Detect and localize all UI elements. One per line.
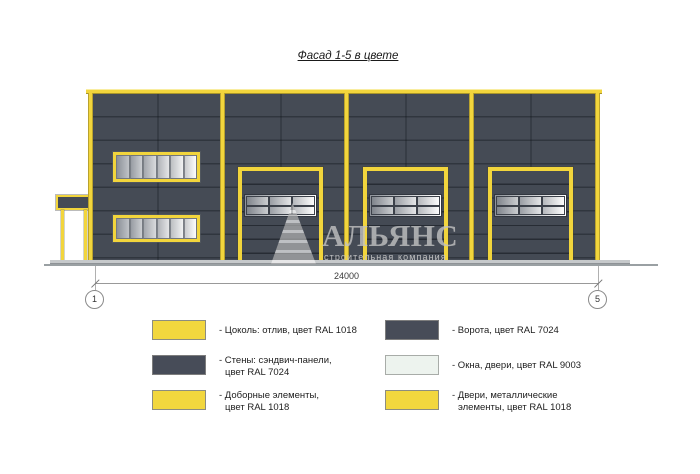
window-pane bbox=[184, 218, 198, 239]
legend-label-line: - Ворота, цвет RAL 7024 bbox=[452, 325, 559, 337]
bay-divider-trim bbox=[220, 93, 225, 264]
legend-label: - Стены: сэндвич-панели, цвет RAL 7024 bbox=[219, 355, 332, 378]
corner-trim-right bbox=[595, 93, 600, 264]
gate-window-pane bbox=[542, 196, 565, 206]
legend-item-gates: - Ворота, цвет RAL 7024 bbox=[385, 320, 559, 340]
gate-window-pane bbox=[269, 196, 292, 206]
gate-window-pane bbox=[417, 196, 440, 206]
legend-item-windows-doors: - Окна, двери, цвет RAL 9003 bbox=[385, 355, 581, 375]
gate-window-pane bbox=[394, 206, 417, 216]
watermark-company-name: АЛЬЯНС bbox=[322, 220, 458, 251]
legend-swatch-yellow bbox=[385, 390, 439, 410]
legend-item-walls: - Стены: сэндвич-панели, цвет RAL 7024 bbox=[152, 355, 332, 378]
window-ribbon-upper bbox=[113, 152, 200, 182]
gate-glazing-band bbox=[495, 195, 566, 216]
legend-label-line: - Стены: сэндвич-панели, bbox=[219, 355, 332, 367]
legend-label-line: цвет RAL 1018 bbox=[219, 402, 319, 414]
legend-label-line: цвет RAL 7024 bbox=[219, 367, 332, 379]
legend-label: - Двери, металлические элементы, цвет RA… bbox=[452, 390, 571, 413]
legend-label: - Ворота, цвет RAL 7024 bbox=[452, 320, 559, 340]
window-ribbon-lower bbox=[113, 215, 200, 242]
window-pane bbox=[130, 218, 144, 239]
gate-window-pane bbox=[519, 196, 542, 206]
dimension-value: 24000 bbox=[95, 271, 598, 281]
legend-label-line: - Окна, двери, цвет RAL 9003 bbox=[452, 360, 581, 372]
window-pane bbox=[170, 155, 184, 179]
legend-label-line: элементы, цвет RAL 1018 bbox=[452, 402, 571, 414]
gate-panels bbox=[492, 171, 569, 264]
legend-label-line: - Двери, металлические bbox=[452, 390, 571, 402]
sectional-gate-3 bbox=[488, 167, 573, 264]
legend-item-trim-elements: - Доборные элементы, цвет RAL 1018 bbox=[152, 390, 319, 413]
drawing-title: Фасад 1-5 в цвете bbox=[98, 50, 598, 62]
legend-label: - Окна, двери, цвет RAL 9003 bbox=[452, 355, 581, 375]
window-pane bbox=[170, 218, 184, 239]
gate-window-pane bbox=[246, 196, 269, 206]
dimension-line bbox=[95, 283, 598, 284]
gate-window-pane bbox=[394, 196, 417, 206]
legend-swatch-light bbox=[385, 355, 439, 375]
gate-glazing-band bbox=[245, 195, 316, 216]
facade-drawing-sheet: Фасад 1-5 в цвете bbox=[0, 0, 700, 474]
gate-window-pane bbox=[496, 196, 519, 206]
window-pane bbox=[143, 155, 157, 179]
gate-glazing-band bbox=[370, 195, 441, 216]
bay-divider-trim bbox=[469, 93, 474, 264]
gate-window-pane bbox=[542, 206, 565, 216]
legend-label: - Доборные элементы, цвет RAL 1018 bbox=[219, 390, 319, 413]
canopy-post-right bbox=[84, 210, 87, 262]
ground-line bbox=[44, 264, 658, 266]
watermark-tagline: строительная компания bbox=[324, 252, 447, 262]
window-pane bbox=[116, 218, 130, 239]
legend-label-line: - Цоколь: отлив, цвет RAL 1018 bbox=[219, 325, 357, 337]
axis-marker-5: 5 bbox=[588, 290, 607, 309]
legend-swatch-yellow bbox=[152, 320, 206, 340]
gate-window-pane bbox=[417, 206, 440, 216]
gate-window-pane bbox=[371, 206, 394, 216]
gate-window-pane bbox=[246, 206, 269, 216]
window-pane bbox=[130, 155, 144, 179]
window-pane bbox=[143, 218, 157, 239]
legend-swatch-dark bbox=[385, 320, 439, 340]
gate-window-pane bbox=[519, 206, 542, 216]
gate-window-pane bbox=[269, 206, 292, 216]
legend-label-line: - Доборные элементы, bbox=[219, 390, 319, 402]
extension-line-right bbox=[598, 266, 599, 290]
legend-item-plinth: - Цоколь: отлив, цвет RAL 1018 bbox=[152, 320, 357, 340]
legend-label: - Цоколь: отлив, цвет RAL 1018 bbox=[219, 320, 357, 340]
gate-window-pane bbox=[292, 196, 315, 206]
window-pane bbox=[116, 155, 130, 179]
window-pane bbox=[157, 218, 171, 239]
window-pane bbox=[184, 155, 198, 179]
gate-window-pane bbox=[496, 206, 519, 216]
axis-marker-1: 1 bbox=[85, 290, 104, 309]
gate-window-pane bbox=[371, 196, 394, 206]
canopy-post-left bbox=[61, 210, 64, 262]
window-pane bbox=[157, 155, 171, 179]
legend-swatch-yellow bbox=[152, 390, 206, 410]
legend-item-metal-doors: - Двери, металлические элементы, цвет RA… bbox=[385, 390, 571, 413]
legend-swatch-dark bbox=[152, 355, 206, 375]
corner-trim-left bbox=[88, 93, 93, 264]
